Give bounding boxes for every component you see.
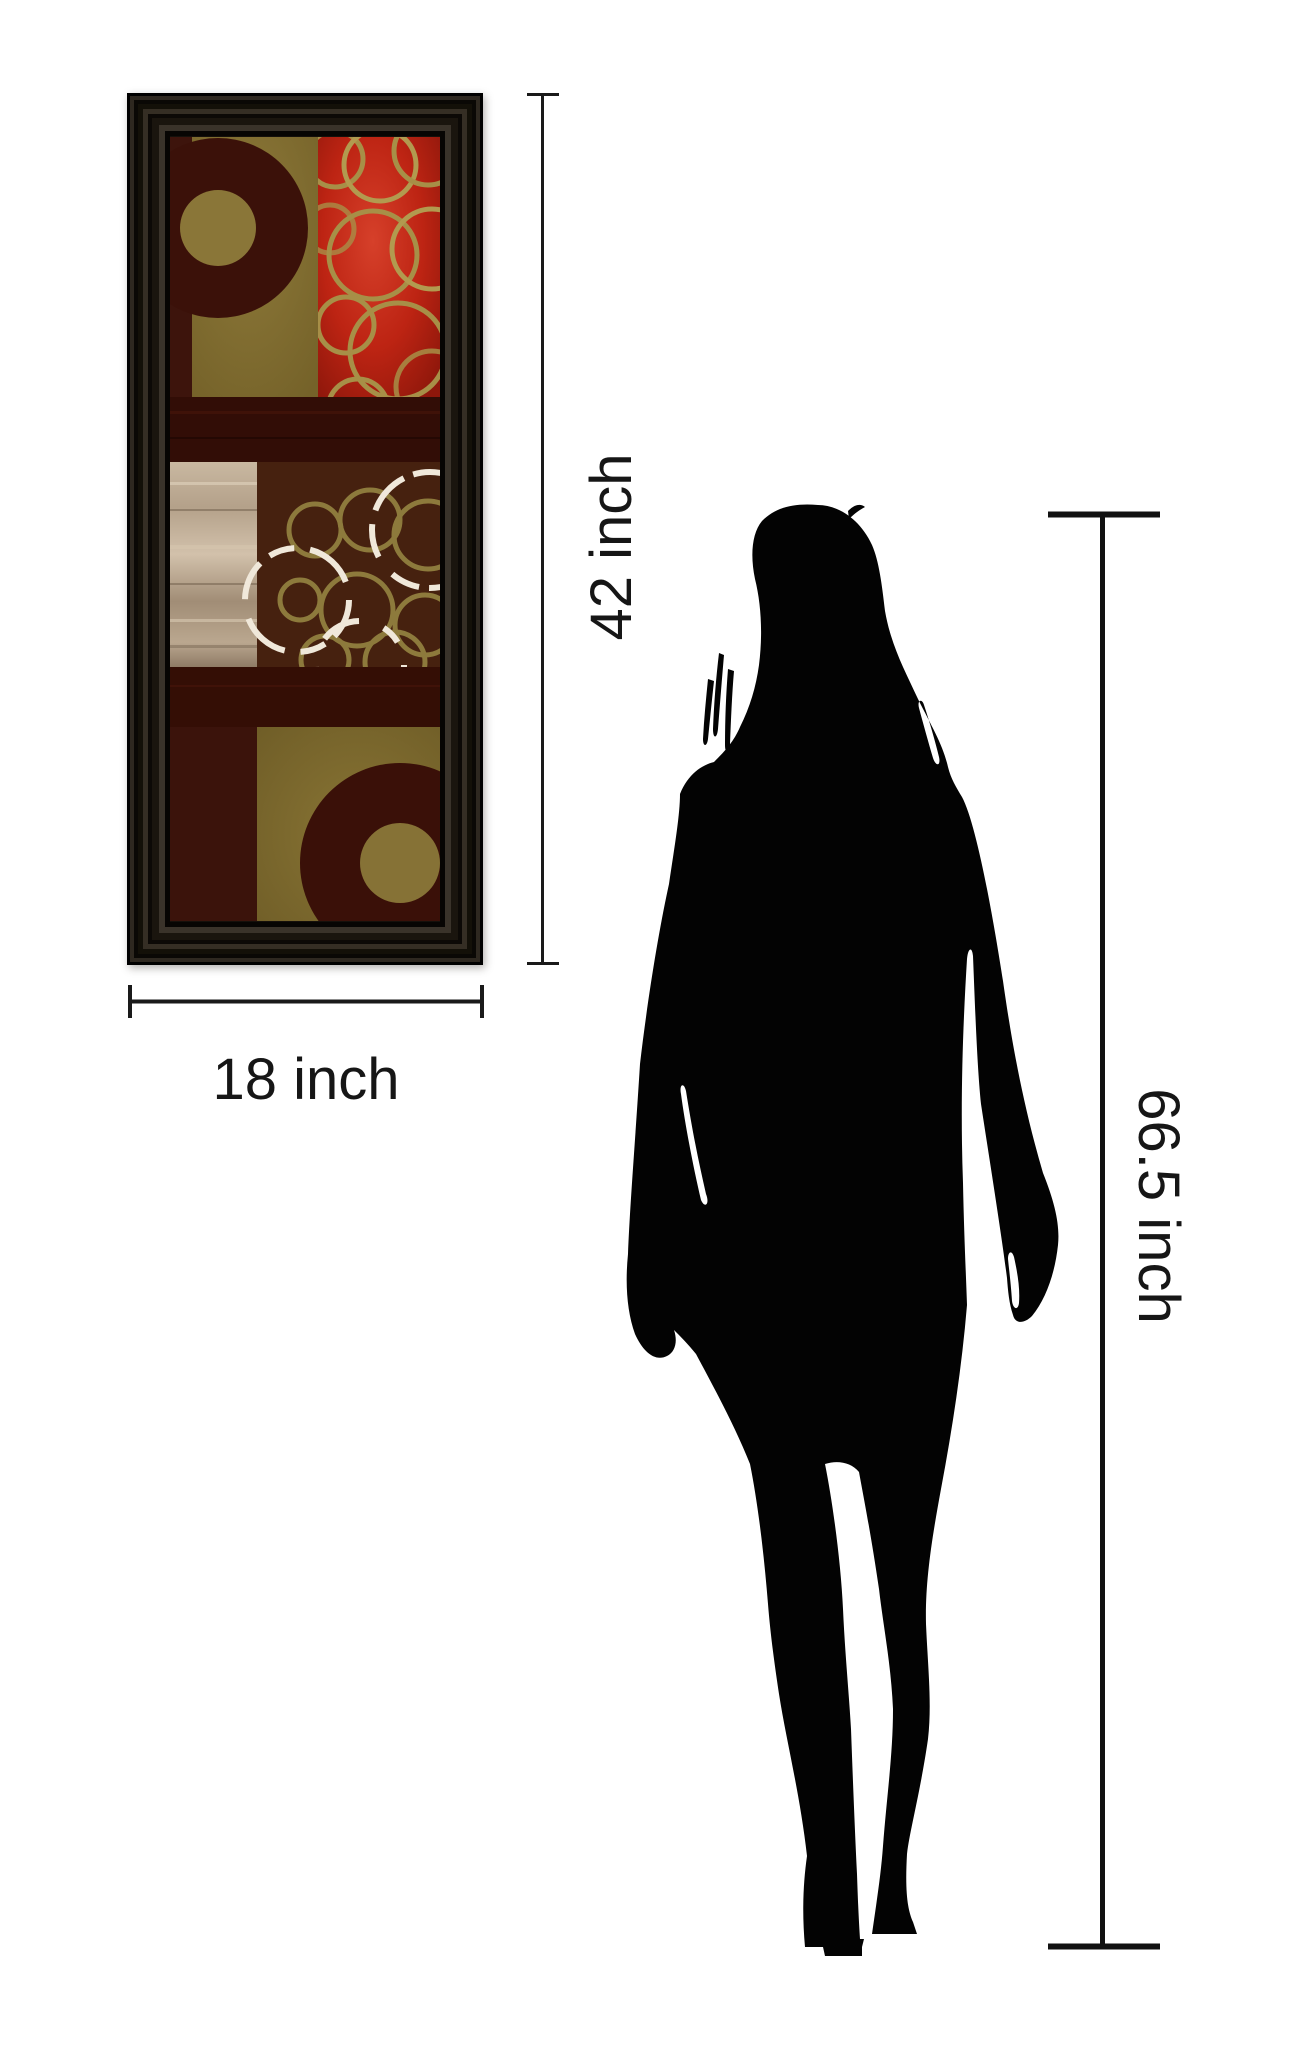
woman-silhouette-figure bbox=[622, 503, 1062, 1963]
size-comparison-diagram: 42 inch 18 inch 66.5 inch bbox=[0, 0, 1296, 2048]
art-bottom-section bbox=[170, 727, 440, 921]
art-band-lower bbox=[170, 667, 440, 727]
art-height-label: 42 inch bbox=[580, 427, 644, 667]
person-height-label: 66.5 inch bbox=[1126, 1066, 1190, 1346]
art-width-label: 18 inch bbox=[156, 1048, 456, 1112]
woman-silhouette bbox=[622, 503, 1062, 1963]
framed-artwork bbox=[127, 93, 483, 965]
art-width-dimension-line bbox=[128, 985, 484, 1018]
abstract-art bbox=[170, 137, 440, 921]
silhouette-body bbox=[627, 505, 1059, 1956]
artwork-print bbox=[170, 137, 440, 921]
art-top-section bbox=[170, 137, 440, 439]
art-height-dimension-line bbox=[527, 95, 559, 965]
art-band-upper bbox=[170, 397, 440, 462]
